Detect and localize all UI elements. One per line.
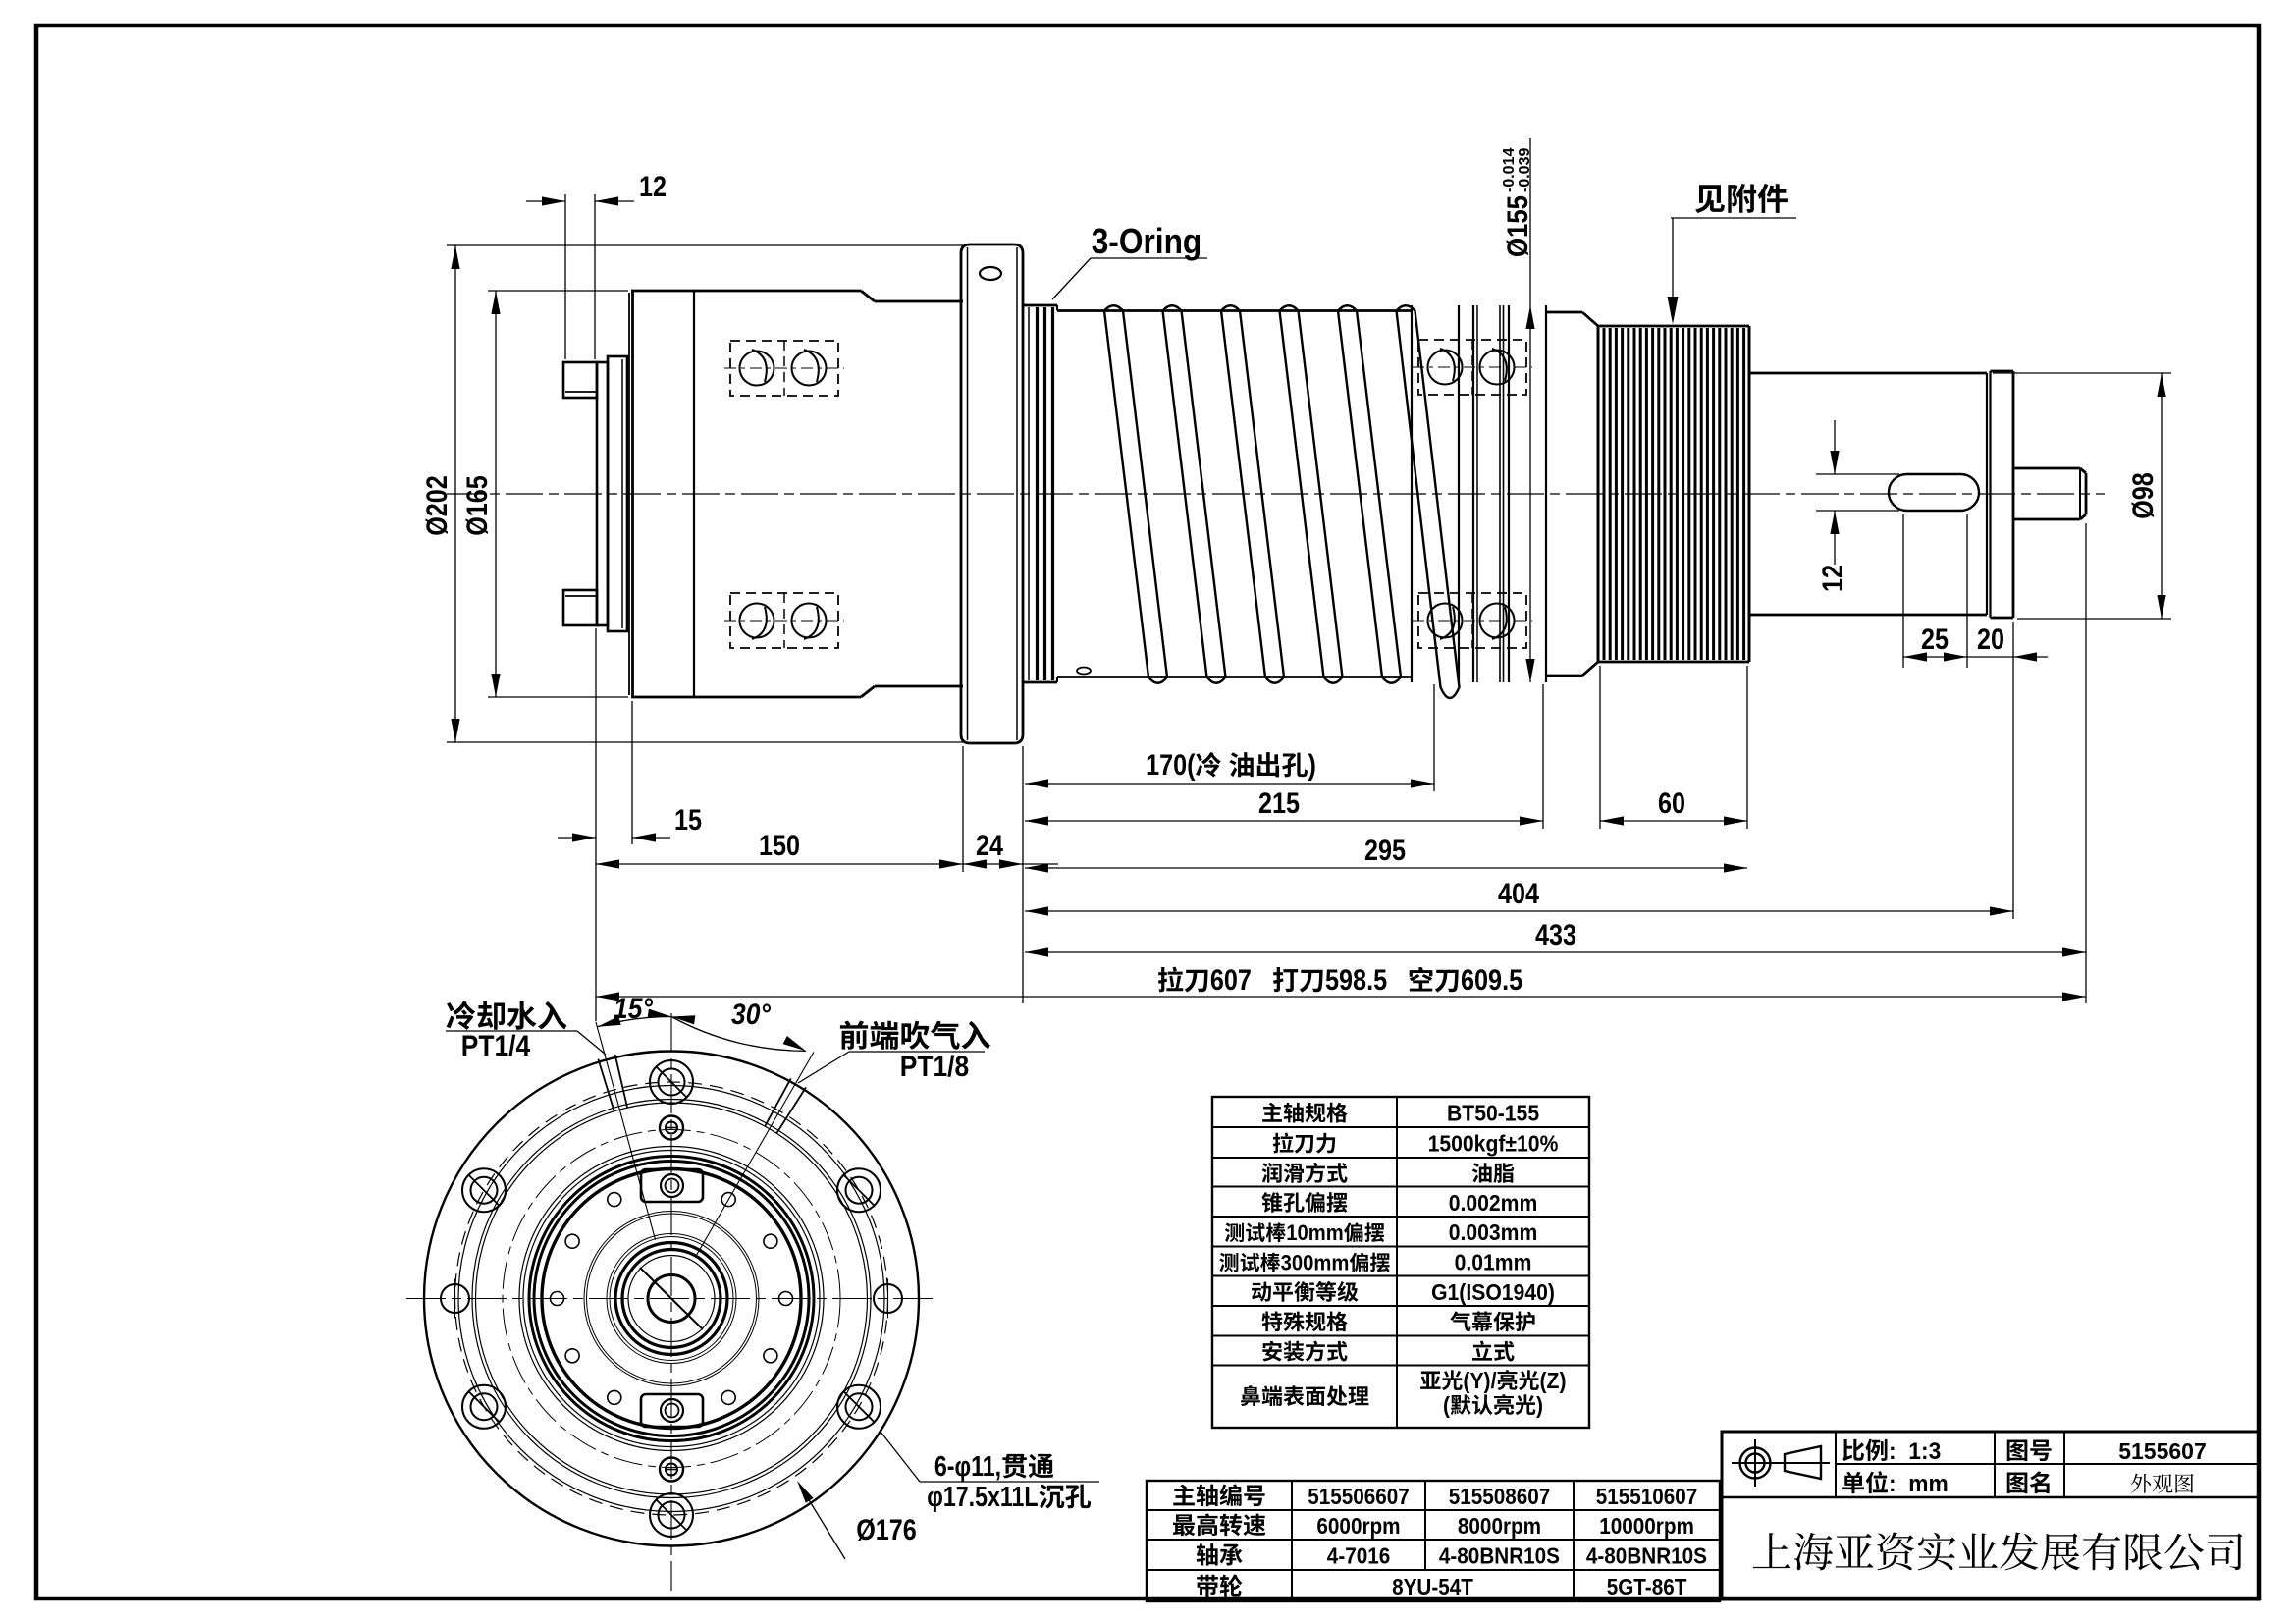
svg-text:433: 433 [1535,919,1576,951]
svg-text:PT1/4: PT1/4 [461,1030,531,1062]
svg-text:295: 295 [1364,835,1406,867]
svg-text:4-80BNR10S: 4-80BNR10S [1439,1543,1560,1569]
svg-text:mm: mm [1908,1471,1949,1497]
svg-text:25: 25 [1921,623,1949,656]
svg-text:609.5: 609.5 [1461,964,1522,997]
svg-text:5GT-86T: 5GT-86T [1607,1574,1687,1599]
svg-text:6-φ11,: 6-φ11, [934,1451,1001,1483]
svg-text:3-Oring: 3-Oring [1092,221,1202,261]
svg-text:8YU-54T: 8YU-54T [1392,1574,1473,1599]
svg-text:300mm: 300mm [1281,1251,1350,1275]
svg-text:Ø98: Ø98 [2127,472,2160,519]
svg-text:G1(ISO1940): G1(ISO1940) [1431,1279,1555,1305]
svg-text:170(: 170( [1146,749,1195,782]
svg-text:598.5: 598.5 [1325,964,1387,997]
svg-text:12: 12 [639,171,667,203]
svg-text:BT50-155: BT50-155 [1447,1101,1539,1126]
svg-text:515506607: 515506607 [1308,1484,1410,1509]
svg-text:24: 24 [976,830,1003,862]
svg-text:Ø165: Ø165 [461,475,494,536]
svg-text:0.003mm: 0.003mm [1449,1219,1538,1245]
svg-text:6000rpm: 6000rpm [1316,1513,1400,1539]
svg-text:): ) [1536,1392,1543,1418]
svg-text:-0.014: -0.014 [1501,148,1518,192]
svg-text:4-7016: 4-7016 [1327,1543,1391,1569]
svg-text:60: 60 [1658,787,1685,820]
svg-text:12: 12 [1817,565,1849,592]
svg-text:215: 215 [1258,787,1300,820]
svg-text:0.002mm: 0.002mm [1449,1190,1538,1216]
svg-text:-0.039: -0.039 [1517,148,1533,192]
svg-text:607: 607 [1210,964,1252,997]
svg-text:Ø155: Ø155 [1502,195,1534,257]
svg-text:): ) [1308,749,1316,782]
svg-text:Ø176: Ø176 [856,1514,917,1546]
svg-text:5155607: 5155607 [2118,1438,2207,1464]
svg-text:Ø202: Ø202 [421,475,454,536]
svg-text:(Y)/: (Y)/ [1463,1368,1497,1393]
svg-text:1500kgf±10%: 1500kgf±10% [1428,1131,1559,1157]
svg-text:φ17.5x11L: φ17.5x11L [927,1482,1038,1513]
svg-text:1:3: 1:3 [1908,1438,1941,1465]
svg-text:0.01mm: 0.01mm [1455,1250,1532,1275]
svg-text:15°: 15° [614,993,654,1025]
svg-text:(: ( [1443,1392,1450,1418]
svg-text:30°: 30° [731,999,772,1031]
svg-text::: : [1889,1438,1896,1465]
svg-text:10000rpm: 10000rpm [1599,1513,1694,1539]
svg-text::: : [1889,1471,1896,1497]
svg-text:20: 20 [1977,623,2004,656]
svg-text:4-80BNR10S: 4-80BNR10S [1586,1543,1707,1569]
svg-text:10mm: 10mm [1286,1220,1344,1245]
svg-text:PT1/8: PT1/8 [900,1051,969,1083]
svg-text:515508607: 515508607 [1449,1484,1551,1509]
svg-text:8000rpm: 8000rpm [1458,1513,1541,1539]
svg-text:(Z): (Z) [1540,1368,1567,1393]
svg-text:404: 404 [1498,878,1539,910]
svg-text:515510607: 515510607 [1596,1484,1698,1509]
svg-text:150: 150 [759,830,800,862]
svg-text:15: 15 [674,804,702,837]
